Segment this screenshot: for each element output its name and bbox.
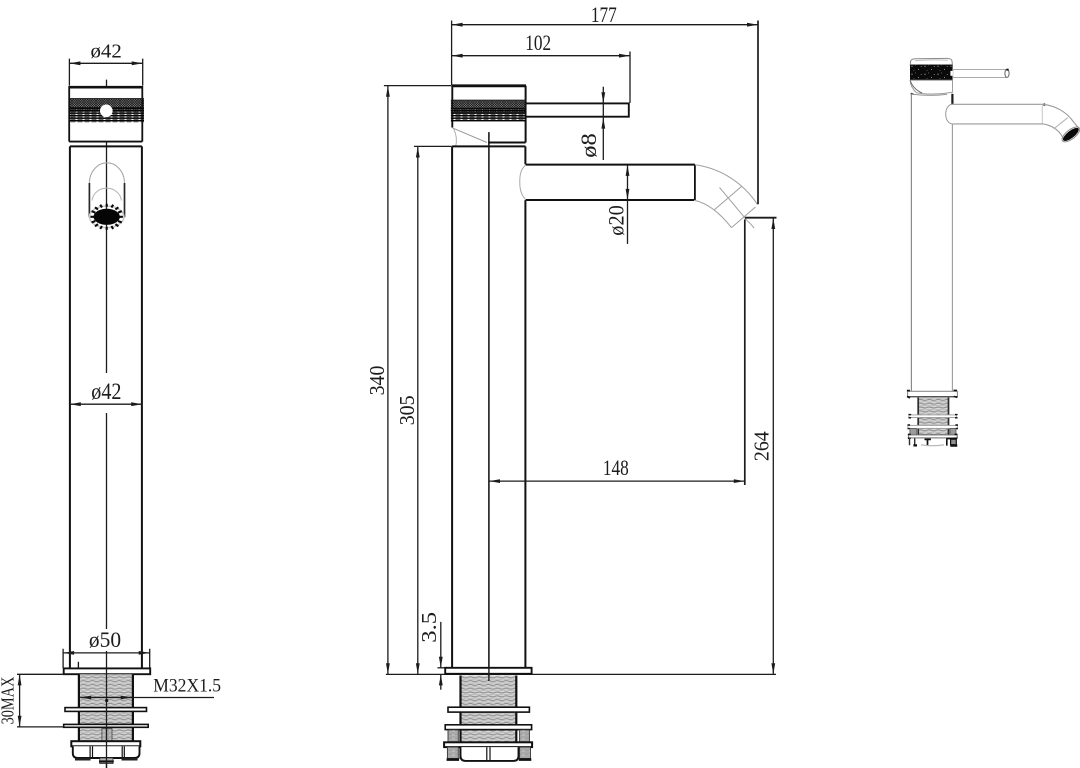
svg-text:177: 177 [591, 2, 617, 27]
svg-text:ø20: ø20 [604, 205, 629, 236]
svg-text:148: 148 [603, 455, 629, 480]
svg-text:340: 340 [365, 366, 389, 396]
svg-text:ø50: ø50 [89, 627, 121, 652]
svg-text:M32X1.5: M32X1.5 [153, 675, 221, 696]
svg-text:ø42: ø42 [91, 41, 122, 62]
svg-text:ø42: ø42 [91, 379, 121, 404]
svg-text:30MAX: 30MAX [0, 676, 18, 724]
svg-text:3.5: 3.5 [417, 612, 441, 643]
svg-text:264: 264 [749, 431, 773, 461]
svg-text:ø8: ø8 [576, 133, 601, 158]
svg-text:305: 305 [395, 395, 419, 425]
svg-text:102: 102 [525, 30, 551, 55]
